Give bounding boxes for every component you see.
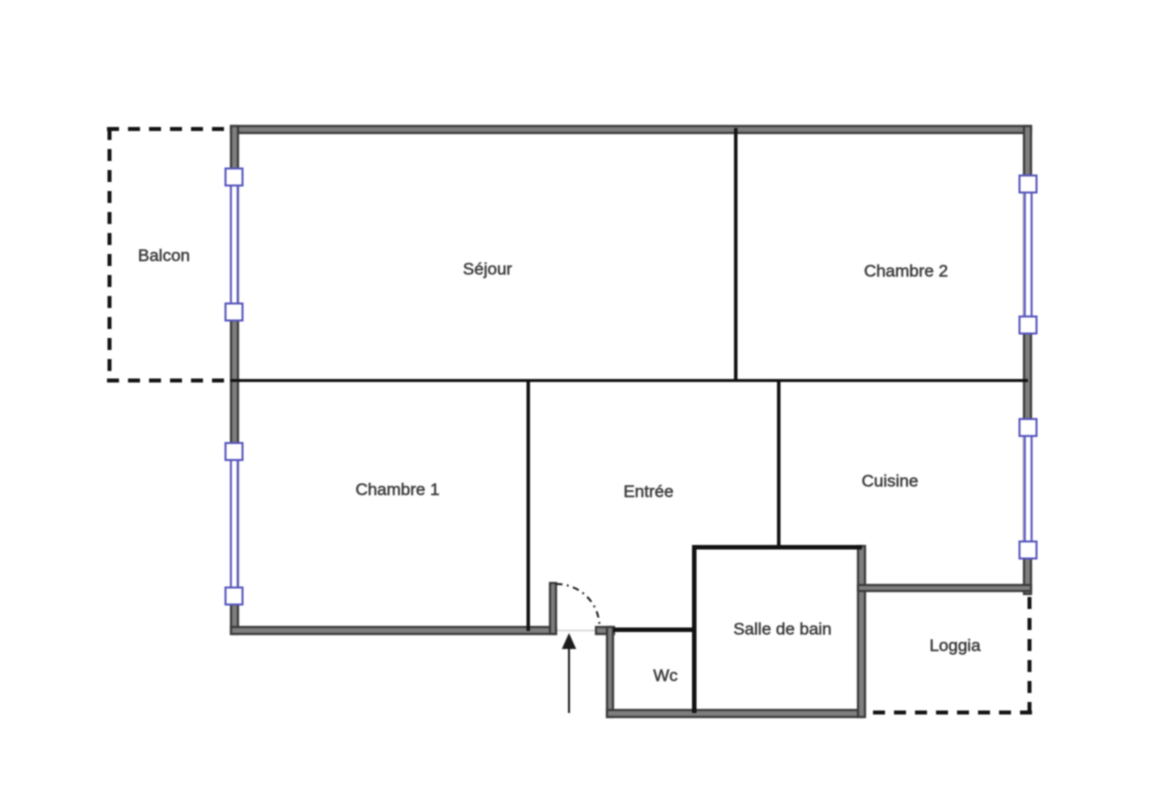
- svg-text:Salle de bain: Salle de bain: [733, 620, 831, 639]
- svg-text:Séjour: Séjour: [463, 260, 512, 279]
- svg-text:Chambre 1: Chambre 1: [355, 480, 439, 499]
- svg-text:Balcon: Balcon: [138, 246, 190, 265]
- svg-text:Wc: Wc: [653, 666, 678, 685]
- svg-text:Chambre 2: Chambre 2: [864, 262, 948, 281]
- svg-text:Cuisine: Cuisine: [862, 472, 919, 491]
- svg-text:Loggia: Loggia: [929, 636, 981, 655]
- svg-text:Entrée: Entrée: [623, 482, 673, 501]
